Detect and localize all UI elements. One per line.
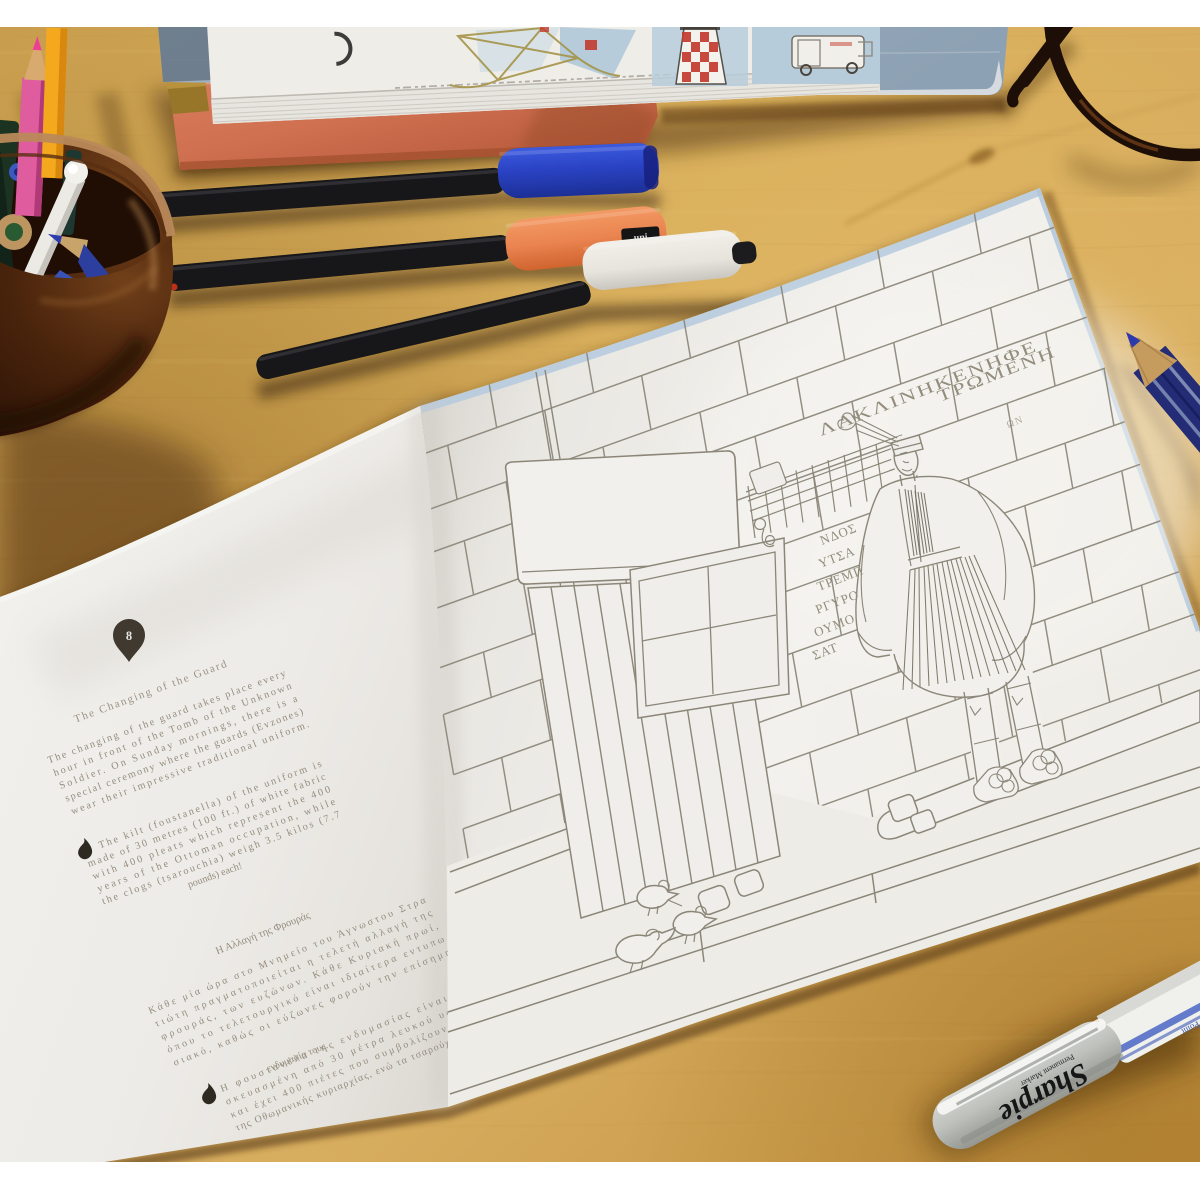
svg-text:8: 8 [126, 629, 132, 643]
